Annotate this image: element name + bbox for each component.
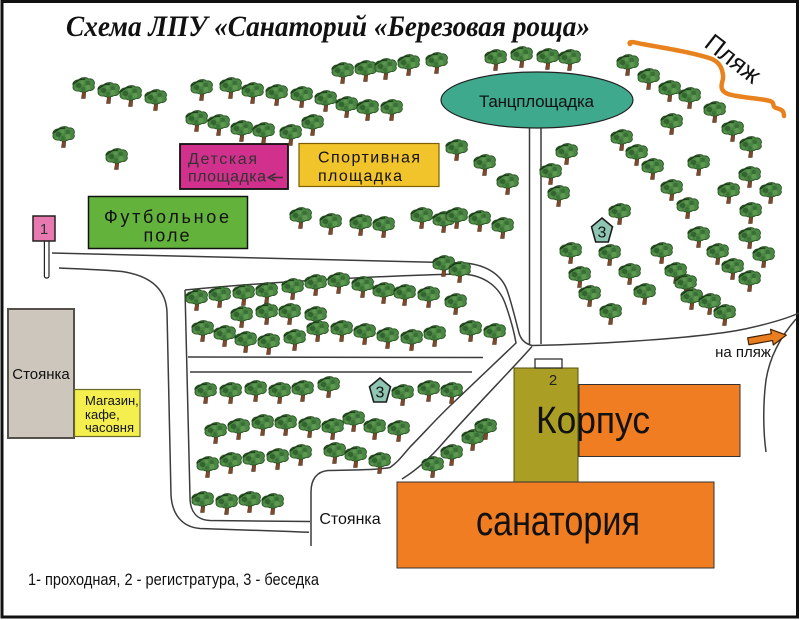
svg-text:часовня: часовня: [85, 420, 134, 435]
svg-text:Детская: Детская: [188, 151, 257, 168]
svg-text:1- проходная, 2 - регистратура: 1- проходная, 2 - регистратура, 3 - бесе…: [28, 571, 320, 589]
svg-text:на пляж: на пляж: [715, 344, 771, 361]
svg-text:санатория: санатория: [476, 497, 640, 544]
svg-text:Стоянка: Стоянка: [12, 366, 70, 383]
svg-text:3: 3: [376, 385, 385, 402]
svg-text:Схема ЛПУ «Санаторий «Березова: Схема ЛПУ «Санаторий «Березовая роща»: [66, 10, 590, 43]
svg-text:2: 2: [549, 372, 557, 389]
svg-text:Корпус: Корпус: [536, 400, 650, 442]
svg-text:3: 3: [598, 225, 607, 242]
svg-text:Стоянка: Стоянка: [319, 511, 380, 528]
svg-text:площадка: площадка: [188, 169, 266, 186]
svg-text:площадка: площадка: [318, 168, 402, 185]
svg-text:поле: поле: [144, 226, 190, 246]
svg-text:Магазин,: Магазин,: [85, 393, 139, 408]
svg-text:1: 1: [40, 221, 48, 238]
svg-text:Танцплощадка: Танцплощадка: [479, 92, 595, 111]
